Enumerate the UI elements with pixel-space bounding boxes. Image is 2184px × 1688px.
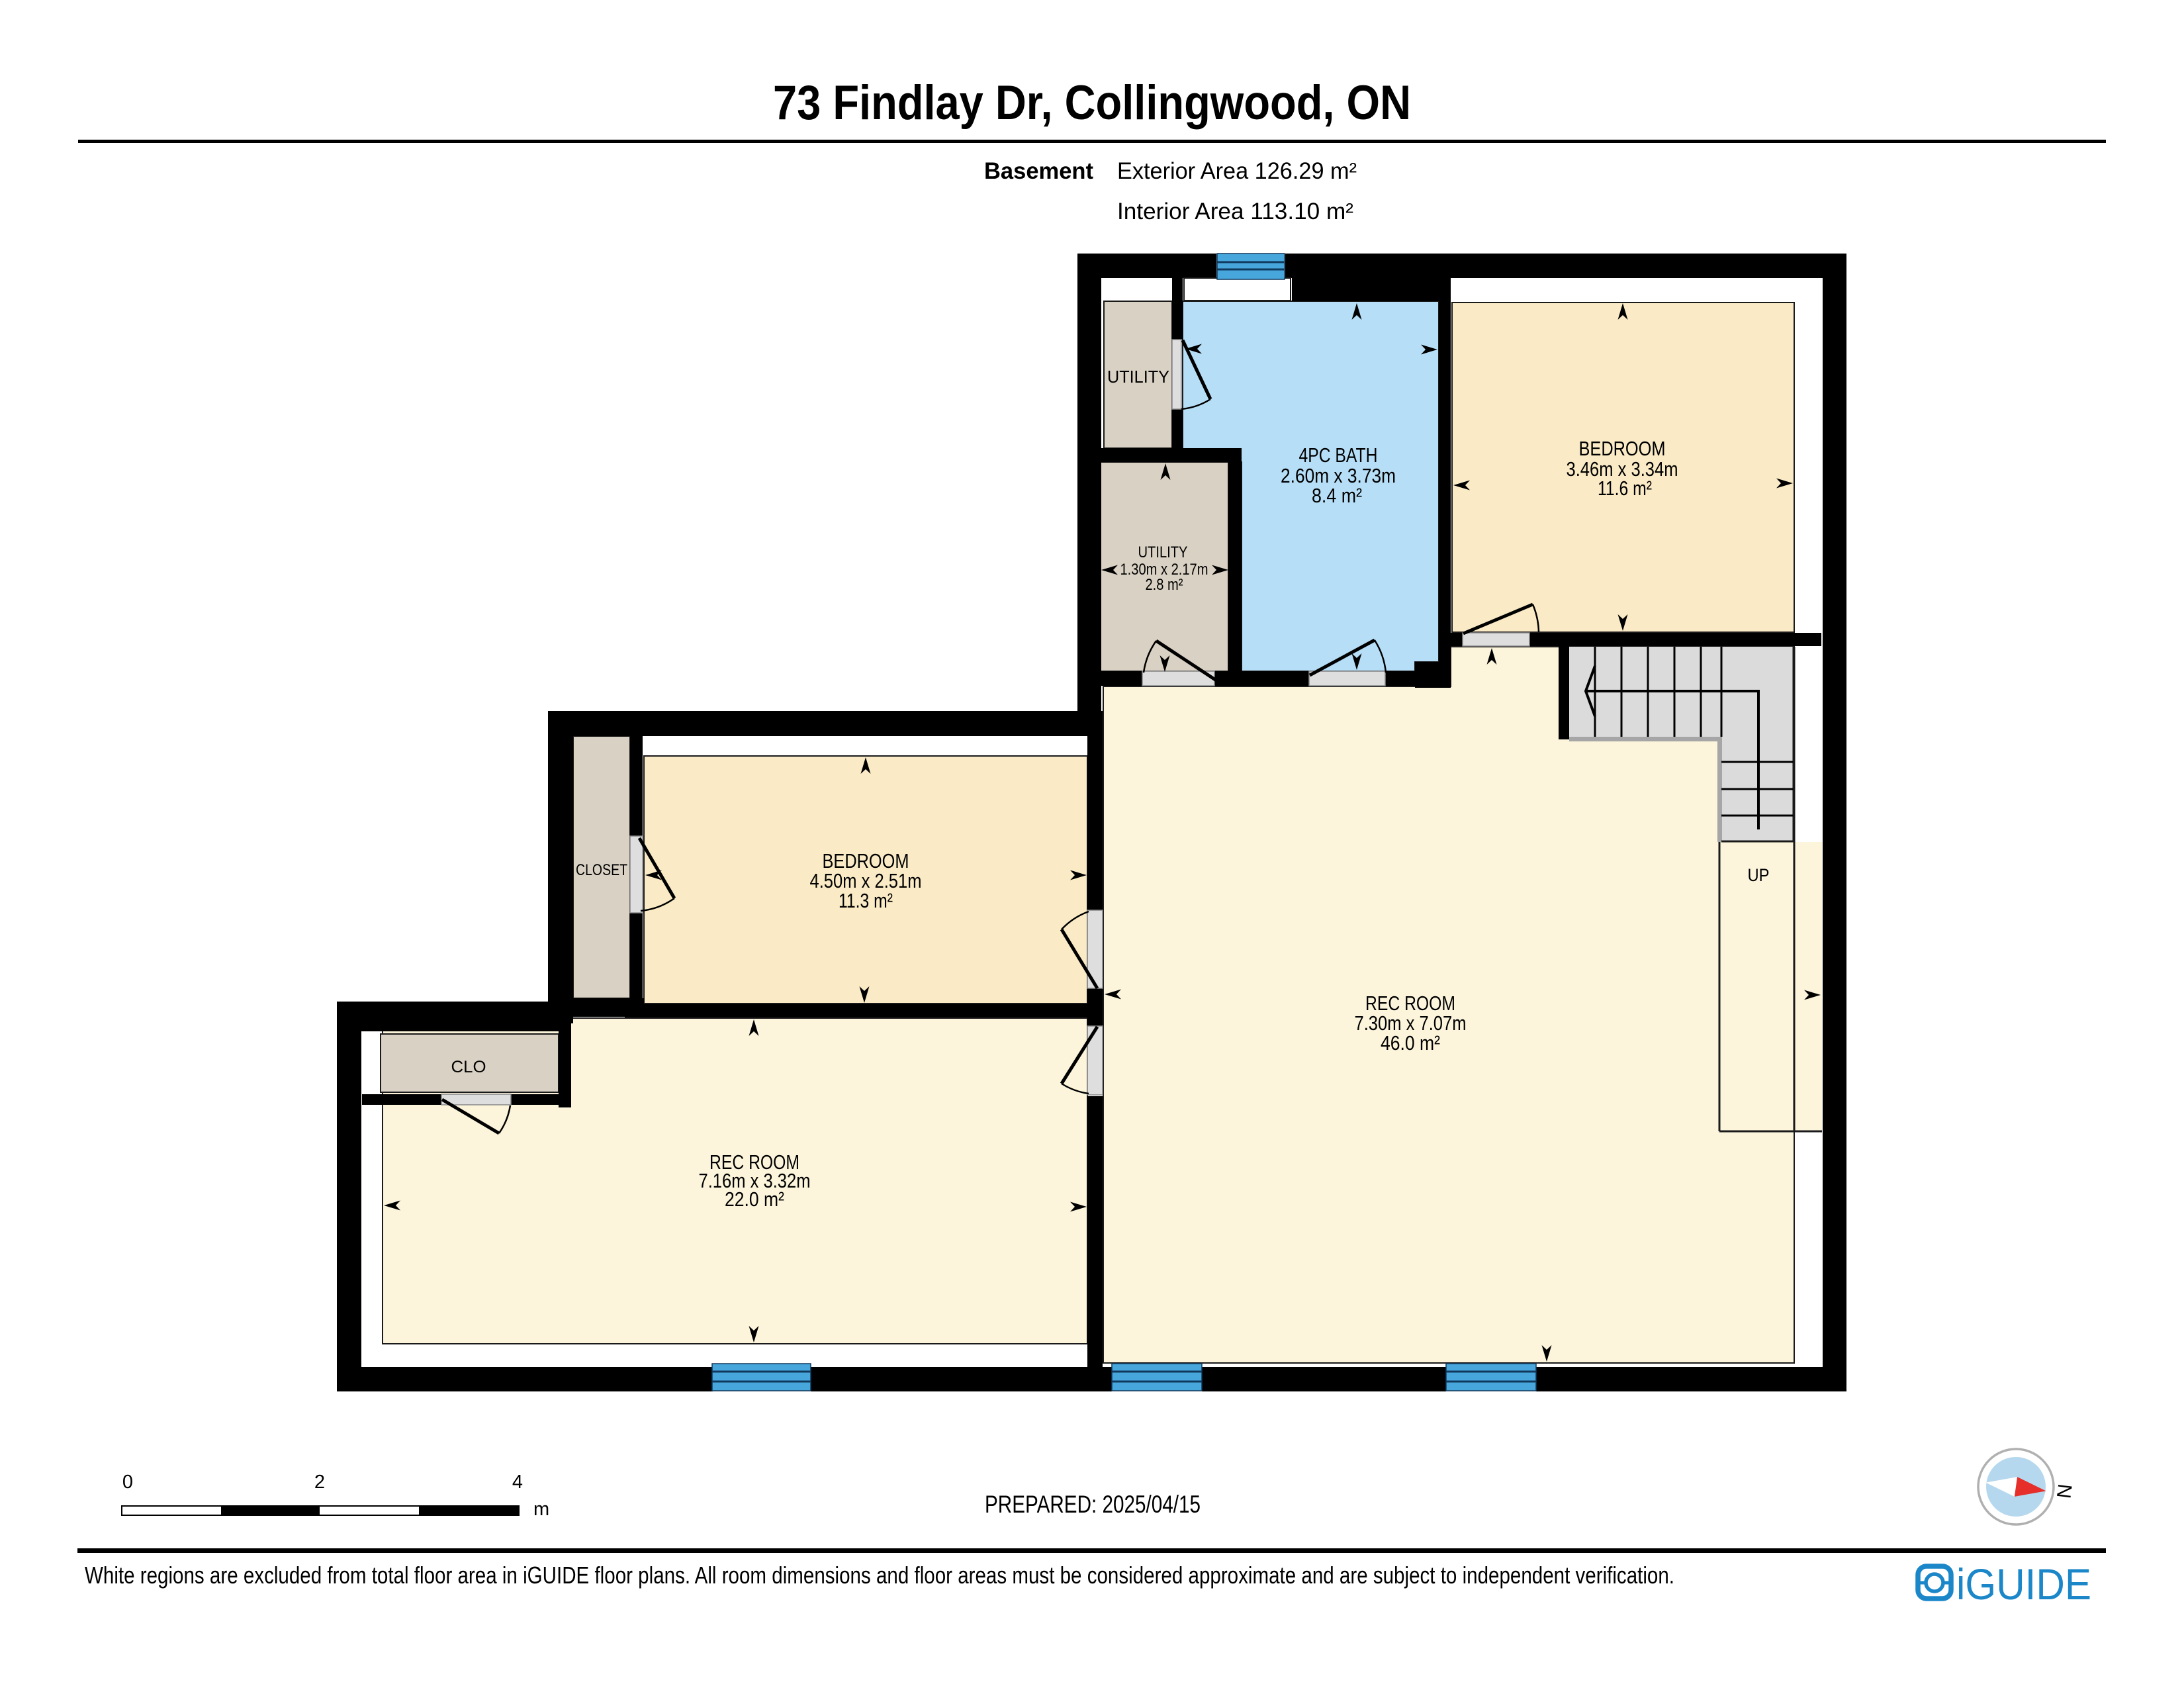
svg-text:11.3 m²: 11.3 m² bbox=[839, 889, 893, 912]
svg-text:CLO: CLO bbox=[451, 1058, 486, 1076]
svg-text:46.0 m²: 46.0 m² bbox=[1381, 1031, 1440, 1055]
svg-text:0: 0 bbox=[122, 1472, 133, 1493]
svg-text:4PC BATH: 4PC BATH bbox=[1299, 444, 1378, 467]
svg-text:73 Findlay Dr, Collingwood, ON: 73 Findlay Dr, Collingwood, ON bbox=[773, 76, 1411, 130]
svg-text:UP: UP bbox=[1748, 865, 1770, 885]
svg-text:CLOSET: CLOSET bbox=[576, 861, 627, 879]
svg-text:Basement: Basement bbox=[984, 158, 1093, 184]
svg-text:2: 2 bbox=[314, 1472, 325, 1493]
svg-text:2.8 m²: 2.8 m² bbox=[1146, 576, 1183, 594]
svg-text:8.4 m²: 8.4 m² bbox=[1312, 484, 1362, 507]
svg-text:iGUIDE: iGUIDE bbox=[1956, 1560, 2091, 1609]
svg-text:White regions are excluded fro: White regions are excluded from total fl… bbox=[85, 1562, 1674, 1589]
svg-text:11.6 m²: 11.6 m² bbox=[1598, 477, 1652, 500]
svg-text:4: 4 bbox=[512, 1472, 523, 1493]
svg-text:Interior Area 113.10 m²: Interior Area 113.10 m² bbox=[1117, 199, 1353, 224]
svg-text:UTILITY: UTILITY bbox=[1107, 367, 1169, 387]
svg-text:m: m bbox=[533, 1499, 549, 1520]
svg-text:PREPARED: 2025/04/15: PREPARED: 2025/04/15 bbox=[985, 1491, 1201, 1518]
svg-text:BEDROOM: BEDROOM bbox=[1579, 437, 1666, 460]
svg-text:Exterior Area 126.29 m²: Exterior Area 126.29 m² bbox=[1117, 158, 1357, 184]
svg-text:UTILITY: UTILITY bbox=[1138, 543, 1188, 561]
svg-text:N: N bbox=[2052, 1483, 2075, 1500]
svg-text:22.0 m²: 22.0 m² bbox=[725, 1188, 784, 1211]
